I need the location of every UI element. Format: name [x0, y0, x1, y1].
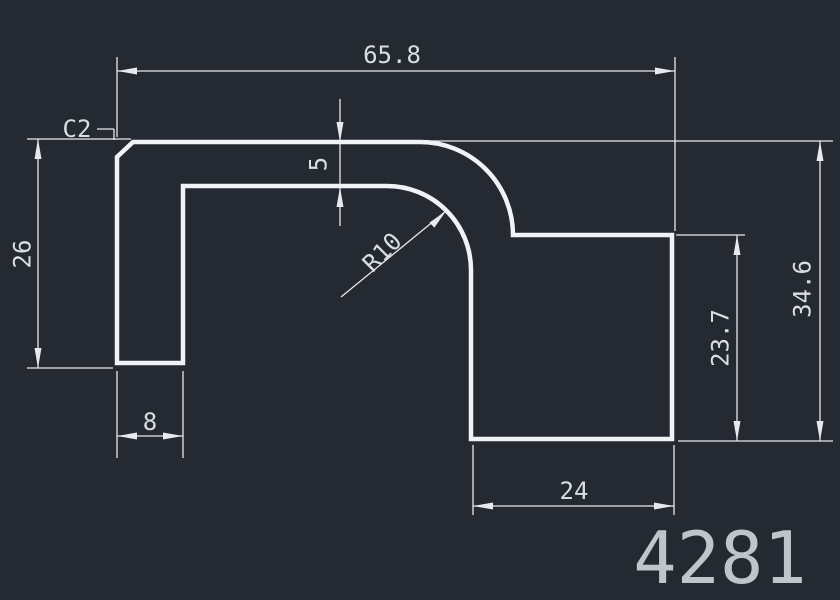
dim-text-overall-height: 34.6 [788, 260, 816, 318]
arrowhead-leg-width-right [163, 433, 183, 440]
cad-canvas: 65.8 C2 5 26 R10 34.6 23.7 8 24 4281 [0, 0, 840, 600]
dimension-lines [27, 57, 833, 515]
arrowhead-inner-radius [429, 211, 446, 228]
arrowhead-overall-height-top [817, 141, 824, 161]
dim-text-inner-radius: R10 [357, 227, 407, 277]
profile-outline [117, 142, 672, 439]
arrowhead-overall-width-right [655, 68, 675, 75]
dim-text-leg-width: 8 [143, 408, 157, 436]
arrowhead-step-height-top [734, 235, 741, 255]
part-number-text: 4281 [633, 516, 806, 600]
arrowhead-leg-width-left [117, 433, 137, 440]
dim-text-top-wall: 5 [304, 157, 332, 171]
arrowhead-top-wall-lower [337, 187, 344, 207]
arrowheads [35, 68, 824, 510]
arrowhead-overall-height-bottom [817, 421, 824, 441]
arrowhead-top-wall-upper [337, 122, 344, 142]
dim-text-bottom-width: 24 [560, 477, 589, 505]
dim-text-chamfer: C2 [63, 115, 92, 143]
dim-text-overall-width: 65.8 [363, 41, 421, 69]
arrowhead-left-height-bottom [35, 348, 42, 368]
arrowhead-step-height-bottom [734, 421, 741, 441]
arrowhead-bottom-width-left [473, 503, 493, 510]
dim-text-step-height: 23.7 [706, 309, 734, 367]
arrowhead-bottom-width-right [654, 503, 674, 510]
arrowhead-overall-width-left [117, 68, 137, 75]
dim-text-left-height: 26 [8, 240, 36, 269]
arrowhead-left-height-top [35, 139, 42, 159]
